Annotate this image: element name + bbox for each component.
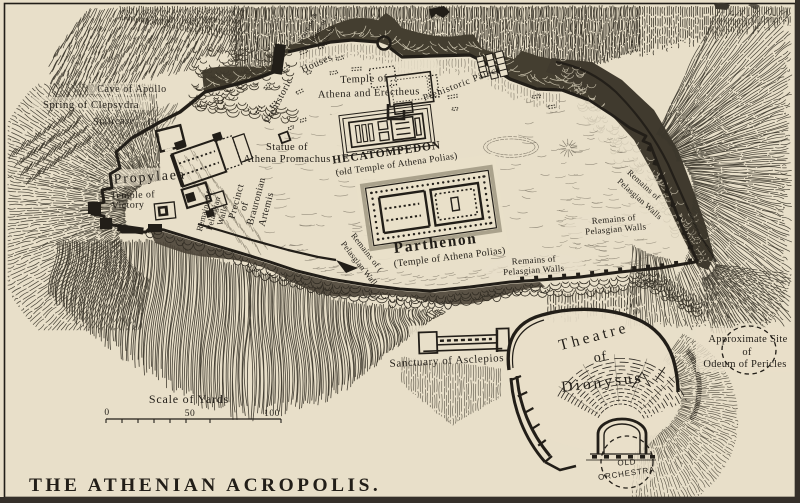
svg-text:Odeum of Pericles: Odeum of Pericles [703, 359, 786, 370]
svg-text:(?): (?) [148, 117, 157, 126]
svg-text:0: 0 [104, 408, 109, 418]
svg-text:Staircase: Staircase [93, 115, 135, 127]
svg-text:of: of [742, 347, 752, 358]
svg-text:100: 100 [264, 409, 280, 419]
svg-text:Approximate Site: Approximate Site [708, 334, 787, 345]
svg-text:Cave of Apollo: Cave of Apollo [97, 84, 167, 95]
svg-text:Spring of Clepsydra: Spring of Clepsydra [43, 99, 139, 111]
svg-text:OLD: OLD [617, 457, 636, 467]
svg-text:Victory: Victory [111, 199, 144, 211]
svg-text:of: of [593, 349, 609, 366]
svg-text:THE ATHENIAN ACROPOLIS.: THE ATHENIAN ACROPOLIS. [29, 475, 381, 496]
svg-text:Athena Promachus: Athena Promachus [243, 154, 331, 165]
svg-text:50: 50 [185, 409, 196, 419]
svg-text:Statue of: Statue of [266, 142, 308, 153]
svg-text:Scale of Yards: Scale of Yards [149, 392, 229, 406]
svg-text:Temple of: Temple of [340, 73, 388, 86]
